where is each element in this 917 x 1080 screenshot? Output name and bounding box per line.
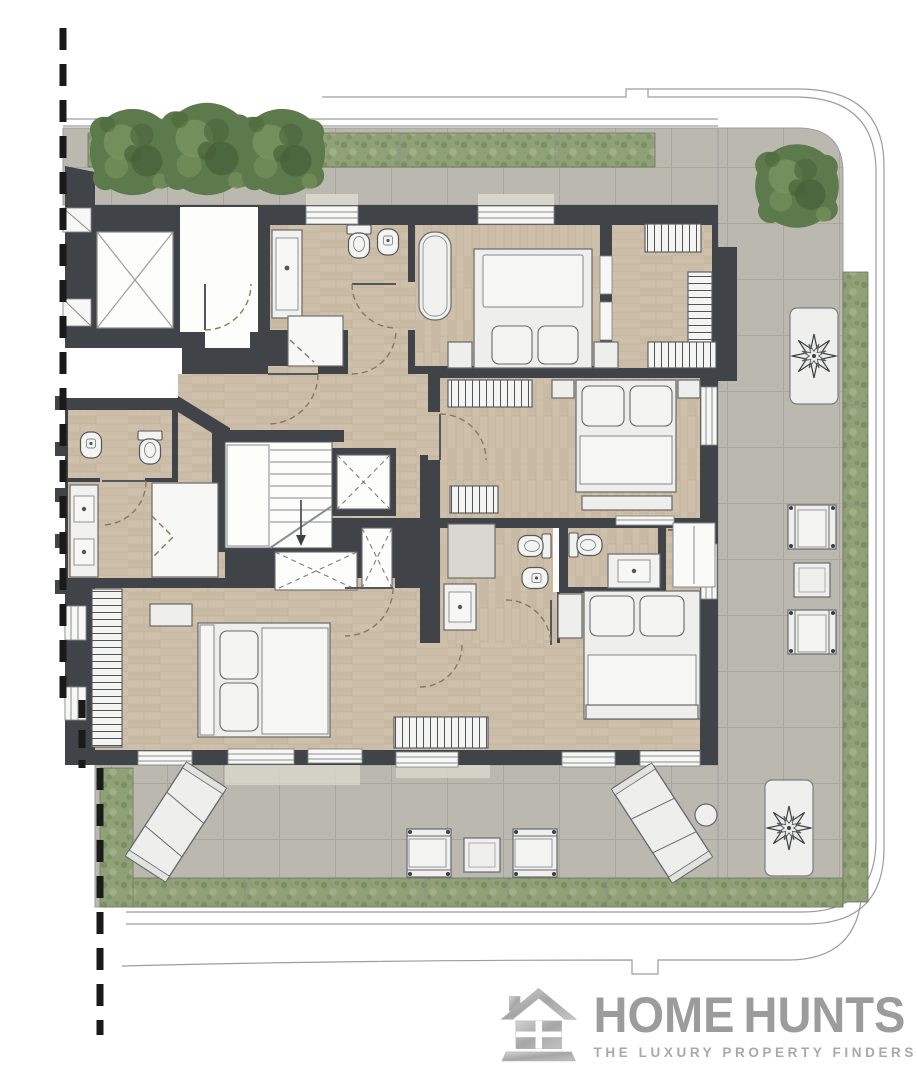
side-table-round [695, 804, 717, 826]
toilet-icon [347, 225, 371, 258]
outside-notch [63, 348, 182, 398]
radiator [394, 717, 488, 748]
vanity-sink [608, 554, 660, 588]
logo-text: HOMEHUNTS THE LUXURY PROPERTY FINDERS [594, 991, 917, 1060]
shaft-secondary [337, 455, 390, 509]
staircase [225, 442, 332, 548]
bathtub [419, 232, 451, 320]
elevator [97, 232, 173, 328]
nightstand [594, 342, 618, 368]
door-mat [225, 763, 360, 785]
bidet-icon [522, 568, 548, 589]
brand-tagline: THE LUXURY PROPERTY FINDERS [594, 1045, 917, 1060]
window [65, 606, 86, 640]
window [640, 751, 700, 766]
window [308, 749, 362, 763]
outdoor-armchair [513, 829, 557, 877]
bench [582, 496, 672, 510]
window [478, 206, 554, 224]
outdoor-table [794, 563, 830, 597]
window [63, 299, 91, 326]
hedge-bottom [132, 878, 843, 907]
corridor-top [348, 330, 408, 374]
nightstand [552, 380, 574, 398]
outdoor-table [464, 838, 500, 872]
toilet-icon [518, 534, 551, 558]
sliding-door [616, 516, 674, 525]
house-icon [498, 978, 580, 1072]
wardrobe [648, 342, 716, 368]
shower-tray [448, 524, 495, 578]
wardrobe [645, 224, 701, 252]
homehunts-logo: HOMEHUNTS THE LUXURY PROPERTY FINDERS [498, 975, 917, 1075]
elevator-lobby [180, 207, 258, 332]
double-vanity [70, 485, 98, 577]
bidet-icon [378, 229, 399, 255]
window [701, 387, 717, 445]
vanity-sink [444, 584, 476, 630]
wardrobe [450, 486, 498, 513]
window [562, 752, 615, 767]
shower [288, 316, 343, 366]
shower [152, 483, 218, 577]
vanity-sink [272, 230, 302, 318]
radiator [92, 589, 122, 747]
terrace-door-panel [673, 523, 715, 587]
planter-star-plant [790, 308, 838, 404]
toilet-icon [138, 431, 162, 464]
window [138, 751, 192, 765]
wardrobe [688, 272, 712, 344]
floor-plan [0, 0, 917, 1080]
brand-name: HOMEHUNTS [594, 989, 917, 1039]
outdoor-armchair [407, 829, 451, 877]
wardrobe [448, 380, 532, 407]
window [306, 206, 358, 224]
outdoor-armchair [788, 610, 836, 654]
nightstand [558, 594, 582, 638]
bed-top [448, 249, 618, 368]
outdoor-armchair [788, 505, 836, 549]
toilet-icon [569, 533, 602, 557]
hedge-right [843, 272, 868, 902]
nightstand [678, 380, 700, 398]
bidet-icon [81, 432, 102, 458]
window [396, 752, 458, 767]
planter-star-plant [765, 780, 813, 876]
tree [755, 144, 839, 228]
nightstand [150, 604, 192, 626]
hedge-left-bottom [100, 768, 133, 907]
nightstand [448, 342, 472, 368]
window [228, 749, 294, 764]
tree [239, 109, 325, 195]
window [63, 208, 91, 232]
